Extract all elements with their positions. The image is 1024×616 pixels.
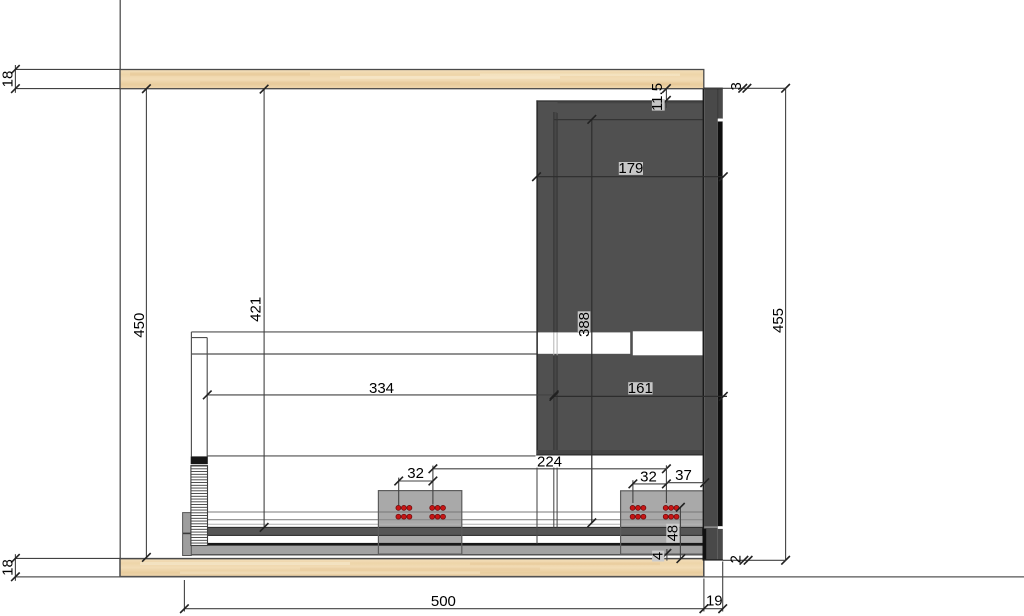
svg-text:161: 161 (628, 380, 653, 397)
svg-text:19: 19 (706, 593, 723, 610)
svg-text:500: 500 (431, 593, 456, 610)
svg-text:11.5: 11.5 (649, 83, 666, 111)
svg-text:18: 18 (0, 559, 17, 576)
svg-text:2: 2 (727, 555, 744, 563)
svg-text:450: 450 (131, 313, 148, 338)
svg-text:3: 3 (728, 82, 745, 90)
svg-text:32: 32 (407, 465, 424, 482)
svg-text:421: 421 (247, 297, 264, 322)
svg-text:224: 224 (537, 454, 562, 471)
svg-text:37: 37 (675, 467, 692, 484)
svg-text:388: 388 (576, 312, 593, 337)
svg-text:48: 48 (664, 525, 681, 542)
svg-text:4: 4 (650, 552, 667, 560)
svg-text:179: 179 (618, 160, 643, 177)
svg-text:455: 455 (770, 308, 787, 333)
svg-text:18: 18 (0, 71, 17, 88)
svg-text:32: 32 (640, 469, 657, 486)
svg-text:334: 334 (369, 380, 394, 397)
